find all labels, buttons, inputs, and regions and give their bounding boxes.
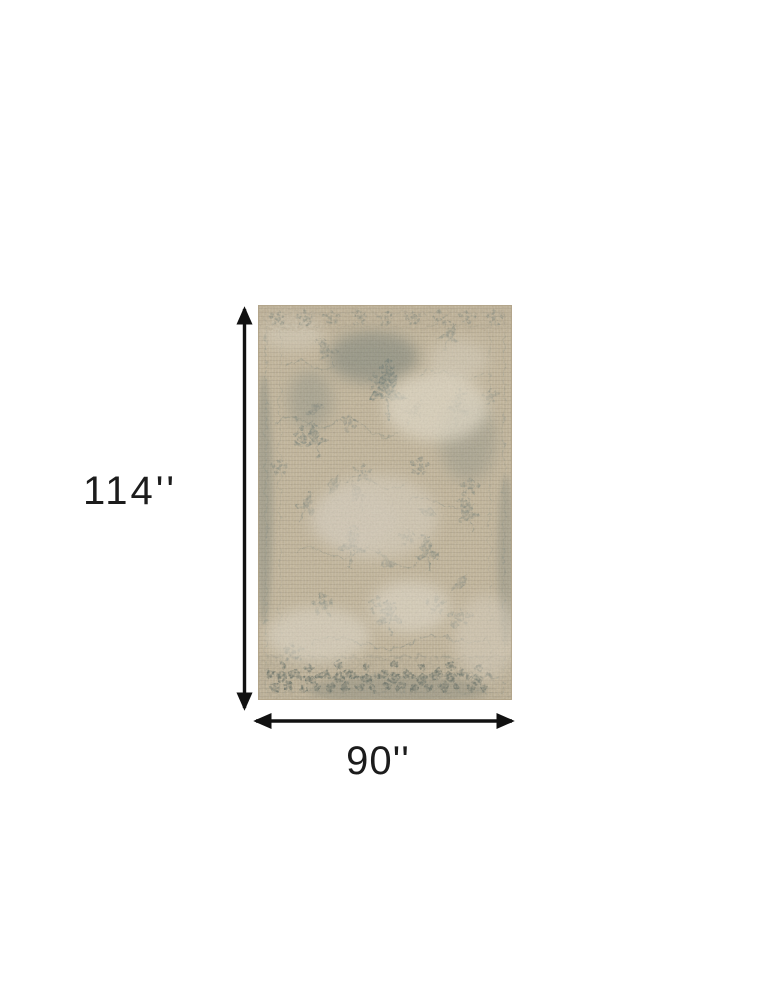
width-dimension-label: 90'' (308, 741, 448, 781)
rug-image (258, 305, 512, 700)
rug-artwork (258, 305, 512, 700)
height-dimension-label: 114'' (60, 471, 200, 511)
product-dimensions-diagram: 114'' 90'' (0, 0, 767, 1000)
